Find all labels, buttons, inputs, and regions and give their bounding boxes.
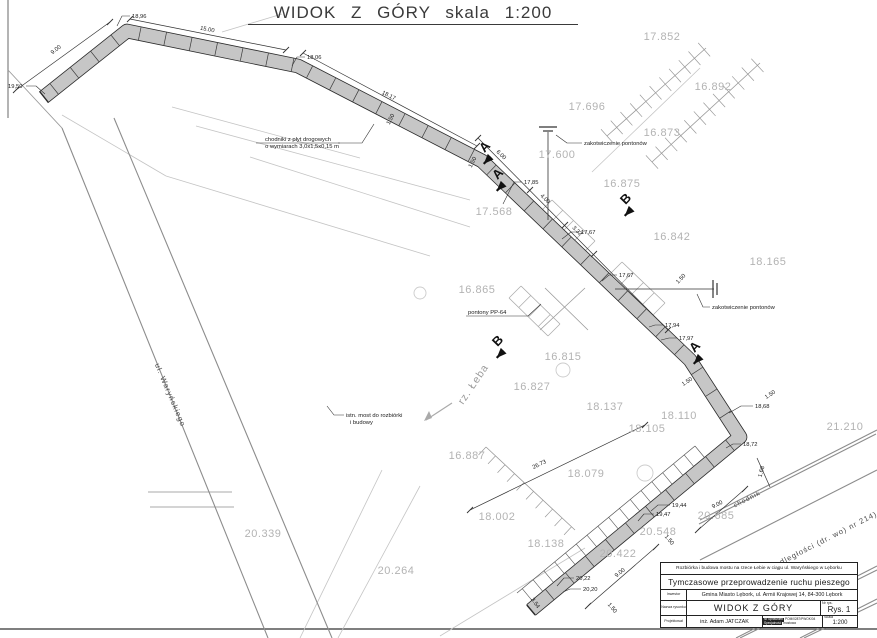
stall-tick (533, 580, 543, 592)
dimension-label: 9.00 (50, 44, 63, 56)
note-slabs: chodniki z płyt drogowych (265, 137, 331, 143)
stall-tick (587, 535, 597, 547)
parking-tick (656, 93, 662, 100)
parking-tick (662, 153, 668, 160)
dimension-label: 9.00 (614, 567, 627, 579)
parking-tick (671, 144, 677, 151)
parking-tick (738, 83, 744, 90)
parking-tick (498, 465, 506, 473)
terrain-elevation-label: 16.887 (449, 450, 486, 462)
spot-elevation-label: 20,22 (576, 576, 591, 582)
parking-tick (646, 101, 652, 108)
parking-tick (704, 50, 710, 57)
parking-tick (713, 94, 719, 101)
specialty-value: mostowa (783, 622, 796, 626)
spot-elevation-label: 18,68 (755, 404, 770, 410)
drawing-number-value: Rys. 1 (828, 606, 851, 614)
spot-elevation-label: 18,72 (743, 442, 758, 448)
pontoon-mooring-line (545, 288, 588, 330)
parking-tick (748, 74, 754, 81)
note-pontoons: pontony PP-64 (468, 310, 507, 316)
stall-tick (641, 491, 651, 503)
parking-tick (507, 474, 515, 482)
terrain-circle (556, 363, 570, 377)
terrain-elevation-label: 20.422 (600, 548, 637, 560)
parking-tick (700, 118, 706, 125)
drawing-name-value: WIDOK Z GÓRY (687, 601, 821, 615)
pontoon-rung (632, 283, 644, 295)
dimension-label: 1.50 (675, 273, 687, 285)
spot-elevation-leader (729, 406, 753, 413)
parking-tick (679, 60, 685, 67)
street-label-warynskiego: ul. Waryńskiego (153, 362, 188, 428)
investor-label: Inwestor (661, 590, 687, 600)
stall-tick (652, 482, 662, 494)
note-old-bridge-leader (327, 406, 344, 415)
terrain-elevation-label: 16.875 (604, 178, 641, 190)
note-anchor-2-leader (697, 294, 710, 307)
designer-value: inż. Adam JATCZAK (687, 616, 763, 627)
terrain-elevation-label: 18.138 (528, 538, 565, 550)
parking-row-line (607, 48, 706, 136)
dimension-label: 1.50 (606, 602, 618, 615)
road-edge (8, 70, 62, 128)
parking-tick (652, 162, 658, 169)
river-label: rz. Łeba (456, 362, 492, 407)
dimension-tick (742, 486, 748, 492)
parking-tick (757, 65, 763, 72)
road-warynskiego-edge (114, 118, 332, 638)
dimension-label: 6.00 (495, 149, 507, 161)
terrain-line (592, 68, 700, 172)
terrain-elevation-label: 16.827 (514, 381, 551, 393)
spot-elevation-label: 19,44 (672, 503, 687, 509)
terrain-circle (414, 287, 426, 299)
parking-tick (690, 127, 696, 134)
spot-elevation-label: 17,67 (581, 230, 596, 236)
terrain-elevation-label: 17.600 (539, 149, 576, 161)
terrain-elevation-label: 17.852 (644, 31, 681, 43)
terrain-elevation-label: 16.865 (459, 284, 496, 296)
pontoon-rung (642, 293, 654, 305)
section-marker-part: B (617, 190, 634, 207)
parking-tick (536, 500, 544, 508)
terrain-elevation-label: 18.002 (479, 511, 516, 523)
terrain-elevation-label: 17.568 (476, 206, 513, 218)
note-anchor-1: zakotwiczenie pontonów (584, 141, 648, 147)
spot-elevation-label: 18,06 (307, 55, 322, 61)
pontoon-mooring-line (540, 288, 585, 330)
terrain-line (300, 470, 382, 638)
terrain-elevation-label: 16.815 (545, 351, 582, 363)
stall-tick (673, 464, 683, 476)
parking-tick (684, 120, 690, 127)
section-marker-part (622, 206, 635, 219)
parking-tick (669, 69, 675, 76)
drawing-title: WIDOK Z GÓRY skala 1:200 (248, 3, 578, 25)
parking-tick (620, 112, 626, 119)
pontoon-rung (519, 296, 531, 308)
parking-tick (751, 59, 757, 66)
dimension-tick (300, 50, 306, 56)
terrain-elevation-label: 20.339 (245, 528, 282, 540)
credentials-cell: Nr uprawnieńPOM/0287/PWOK/04 Specjalność… (763, 616, 823, 627)
parking-tick (601, 129, 607, 136)
spot-elevation-label: 19,47 (656, 512, 671, 518)
terrain-elevation-label: 16.892 (695, 81, 732, 93)
dimension-label: 1.50 (681, 377, 694, 388)
spot-elevation-label: 17,67 (619, 273, 634, 279)
dimension-tick (591, 251, 597, 257)
dimension-tick (527, 187, 533, 193)
river-flow-arrowhead (424, 411, 432, 421)
section-marker-part (494, 348, 507, 361)
dimension-tick (585, 603, 591, 609)
stall-tick (576, 544, 586, 556)
terrain-elevation-label: 20.264 (378, 565, 415, 577)
stall-tick (598, 526, 608, 538)
parking-tick (703, 103, 709, 110)
note-slabs: o wymiarach 3,0x1,5x0,15 m (265, 144, 339, 150)
specialty-label: Specjalność (763, 622, 782, 626)
parking-tick (636, 110, 642, 117)
pontoon-rung (538, 315, 550, 327)
parking-tick (659, 77, 665, 84)
dimension-label: 4.00 (539, 193, 551, 205)
note-old-bridge: i budowy (350, 420, 373, 426)
terrain-elevation-label: 18.110 (661, 410, 697, 422)
parking-tick (665, 84, 671, 91)
pontoon-rung (548, 324, 560, 336)
terrain-elevation-label: 16.842 (654, 231, 691, 243)
dimension-line (478, 138, 668, 330)
parking-tick (617, 127, 623, 134)
terrain-elevation-label: 18.137 (587, 401, 624, 413)
stall-tick (544, 571, 554, 583)
spot-elevation-label: 19,50 (8, 84, 23, 90)
spot-elevation-label: 17,94 (665, 323, 680, 329)
terrain-elevation-label: 18.165 (750, 256, 787, 268)
drawing-sheet: 17.85216.89217.69616.87317.60016.87517.5… (0, 0, 877, 638)
parking-tick (698, 43, 704, 50)
dimension-label: 26.73 (532, 459, 548, 471)
stall-tick (663, 473, 673, 485)
note-anchor-1-leader (556, 135, 582, 143)
parking-tick (742, 68, 748, 75)
drawing-name-label: Nazwa rysunku (661, 601, 687, 615)
parking-tick (611, 121, 617, 128)
section-marker-part: B (489, 332, 506, 349)
parking-tick (646, 155, 652, 162)
terrain-elevation-label: 20.548 (640, 526, 677, 538)
dimension-tick (695, 527, 701, 533)
note-old-bridge: istn. most do rozbiórki (346, 413, 402, 419)
scale-value: 1:200 (832, 620, 847, 627)
note-anchor-2: zakotwiczenie pontonów (712, 305, 776, 311)
terrain-elevation-label: 18.079 (568, 468, 605, 480)
stall-tick (522, 589, 532, 601)
dimension-line (470, 425, 645, 510)
parking-tick (564, 527, 572, 535)
parking-tick (640, 95, 646, 102)
terrain-elevation-label: 20.685 (698, 510, 735, 522)
parking-tick (630, 103, 636, 110)
title-block: Rozbiórka i budowa mostu na rzece Łebie … (660, 562, 858, 628)
dimension-tick (467, 507, 473, 513)
parking-tick (650, 86, 656, 93)
note-slabs-leader (338, 124, 374, 143)
parking-tick (488, 456, 496, 464)
dimension-tick (283, 47, 289, 53)
sidewalk-label: chodnik (733, 490, 762, 510)
terrain-line (338, 486, 420, 638)
parking-tick (555, 518, 563, 526)
parking-tick (656, 147, 662, 154)
parking-tick (685, 67, 691, 74)
section-marker-b: B (611, 190, 640, 219)
terrain-line (250, 157, 470, 227)
terrain-elevation-label: 18.105 (629, 423, 666, 435)
parking-tick (681, 136, 687, 143)
parking-row-line (652, 63, 760, 162)
dimension-label: 18.17 (381, 90, 397, 102)
stall-tick (695, 446, 705, 458)
parking-tick (732, 76, 738, 83)
parking-tick (688, 52, 694, 59)
title-block-project: Rozbiórka i budowa mostu na rzece Łebie … (676, 566, 842, 571)
dimension-tick (107, 19, 113, 25)
terrain-elevation-label: 17.696 (569, 101, 606, 113)
site-plan-svg: 17.85216.89217.69616.87317.60016.87517.5… (0, 0, 877, 638)
parking-tick (709, 109, 715, 116)
pontoon-rung (653, 303, 665, 315)
section-marker-b: B (483, 332, 512, 361)
parking-tick (526, 491, 534, 499)
stall-tick (684, 455, 694, 467)
parking-tick (626, 119, 632, 126)
pontoon-rung (529, 305, 541, 317)
investor-value: Gmina Miasto Lębork, ul. Armii Krajowej … (687, 590, 857, 600)
parking-tick (719, 101, 725, 108)
dimension-tick (653, 544, 659, 550)
stall-tick (619, 508, 629, 519)
terrain-line (166, 176, 430, 256)
terrain-circle (637, 465, 653, 481)
dimension-label: 1.50 (764, 390, 777, 401)
stall-tick (609, 517, 619, 529)
parking-tick (694, 58, 700, 65)
pontoon-rung (509, 286, 521, 298)
title-block-subject: Tymczasowe przeprowadzenie ruchu pieszeg… (668, 577, 850, 587)
parking-tick (675, 76, 681, 83)
terrain-elevation-label: 21.210 (827, 421, 864, 433)
terrain-elevation-label: 16.873 (644, 127, 681, 139)
parking-tick (545, 509, 553, 517)
terrain-line (172, 107, 360, 158)
spot-elevation-label: 20,20 (583, 587, 598, 593)
spot-elevation-label: 17,85 (524, 180, 539, 186)
parking-tick (694, 111, 700, 118)
stall-tick (630, 499, 640, 511)
designer-label: Projektował (661, 616, 687, 627)
spot-elevation-label: 18,96 (132, 14, 147, 20)
